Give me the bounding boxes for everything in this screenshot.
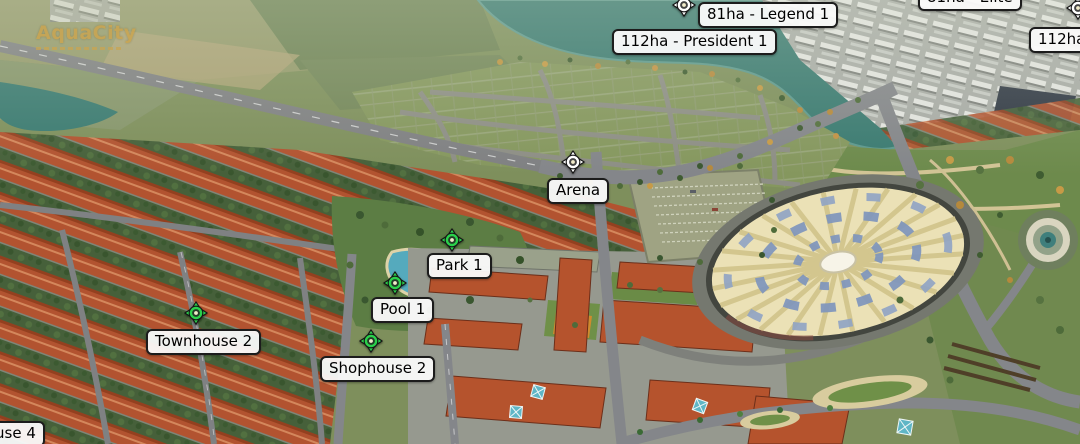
aquacity-logo-text: AquaCity [36, 22, 137, 44]
label-arena[interactable]: Arena [547, 178, 609, 204]
label-zone-112ha[interactable]: 112ha [1029, 27, 1080, 53]
roundabout-pond [1018, 210, 1078, 270]
label-elite[interactable]: 81ha - Elite [918, 0, 1022, 11]
map-viewport[interactable]: AquaCity 81ha - Legend 1 112ha - Preside… [0, 0, 1080, 444]
haze-overlay [0, 0, 1080, 175]
legend-1-marker-icon[interactable] [672, 0, 696, 17]
aquacity-logo-tagline [36, 47, 122, 50]
aerial-render-canvas[interactable] [0, 0, 1080, 444]
arena-marker-icon[interactable] [561, 150, 585, 174]
aquacity-logo: AquaCity [36, 22, 137, 50]
label-pool-1[interactable]: Pool 1 [371, 297, 434, 323]
pool-1-marker-icon[interactable] [383, 271, 407, 295]
label-legend-1[interactable]: 81ha - Legend 1 [698, 2, 838, 28]
label-townhouse-2[interactable]: Townhouse 2 [146, 329, 261, 355]
label-clipped-corner[interactable]: use 4 [0, 421, 45, 444]
label-president-1[interactable]: 112ha - President 1 [612, 29, 777, 55]
park-1-marker-icon[interactable] [440, 228, 464, 252]
shophouse-2-marker-icon[interactable] [359, 329, 383, 353]
label-park-1[interactable]: Park 1 [427, 253, 492, 279]
zone-112ha-marker-icon[interactable] [1066, 0, 1080, 20]
townhouse-2-marker-icon[interactable] [184, 301, 208, 325]
label-shophouse-2[interactable]: Shophouse 2 [320, 356, 435, 382]
